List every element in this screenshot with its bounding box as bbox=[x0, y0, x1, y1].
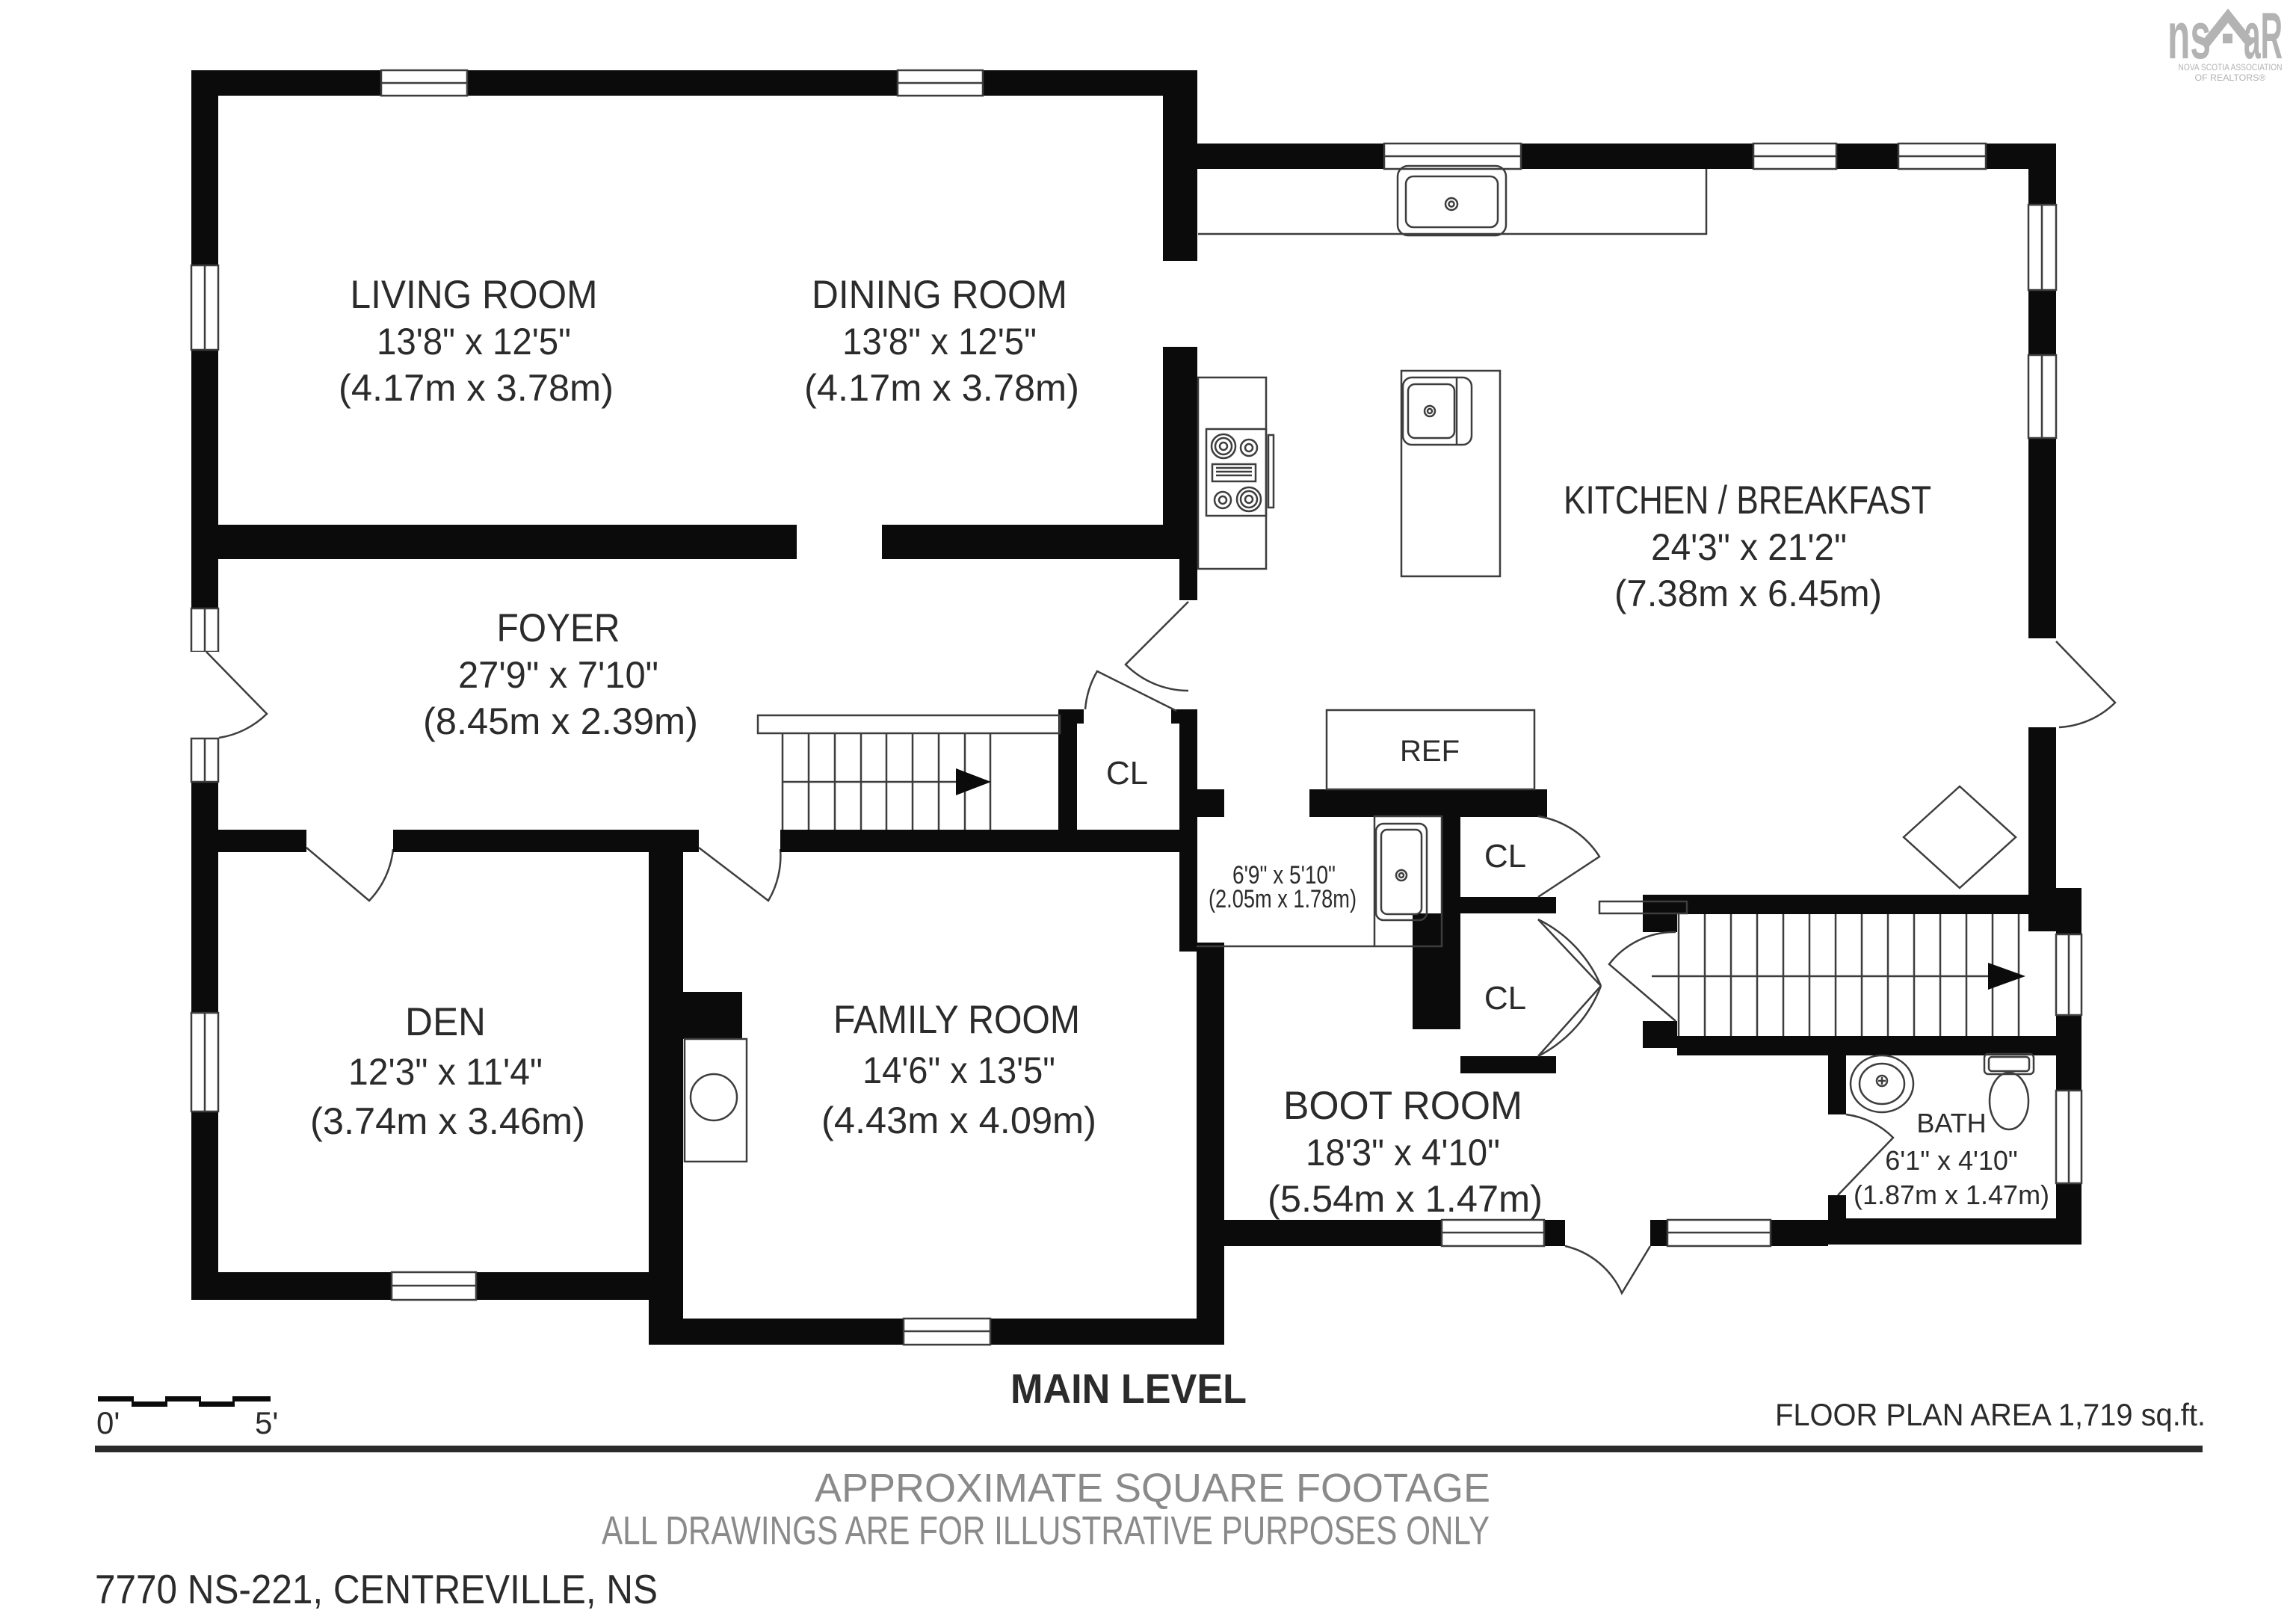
svg-text:(8.45m x 2.39m): (8.45m x 2.39m) bbox=[423, 700, 698, 742]
svg-text:REF: REF bbox=[1400, 735, 1460, 768]
svg-text:NOVA SCOTIA ASSOCIATION: NOVA SCOTIA ASSOCIATION bbox=[2179, 62, 2283, 73]
svg-text:(3.74m x 3.46m): (3.74m x 3.46m) bbox=[310, 1100, 585, 1142]
svg-text:OF REALTORS®: OF REALTORS® bbox=[2195, 73, 2266, 83]
svg-text:FOYER: FOYER bbox=[497, 606, 620, 650]
svg-text:KITCHEN / BREAKFAST: KITCHEN / BREAKFAST bbox=[1564, 478, 1931, 522]
svg-text:(4.43m x 4.09m): (4.43m x 4.09m) bbox=[821, 1100, 1096, 1141]
svg-text:DEN: DEN bbox=[405, 1000, 486, 1044]
svg-text:13'8" x 12'5": 13'8" x 12'5" bbox=[842, 321, 1037, 363]
svg-text:BOOT ROOM: BOOT ROOM bbox=[1283, 1084, 1522, 1128]
svg-text:CL: CL bbox=[1484, 980, 1526, 1017]
svg-text:27'9" x 7'10": 27'9" x 7'10" bbox=[458, 654, 658, 696]
svg-text:CL: CL bbox=[1106, 755, 1148, 792]
svg-text:CL: CL bbox=[1484, 838, 1526, 875]
svg-text:(2.05m x 1.78m): (2.05m x 1.78m) bbox=[1209, 885, 1357, 913]
svg-text:FAMILY ROOM: FAMILY ROOM bbox=[833, 998, 1080, 1042]
svg-text:18'3" x 4'10": 18'3" x 4'10" bbox=[1306, 1132, 1500, 1174]
svg-text:14'6" x 13'5": 14'6" x 13'5" bbox=[862, 1049, 1055, 1091]
svg-text:(4.17m x 3.78m): (4.17m x 3.78m) bbox=[804, 367, 1079, 409]
svg-text:LIVING ROOM: LIVING ROOM bbox=[351, 273, 598, 317]
svg-text:12'3" x 11'4": 12'3" x 11'4" bbox=[348, 1051, 543, 1093]
svg-text:APPROXIMATE SQUARE FOOTAGE: APPROXIMATE SQUARE FOOTAGE bbox=[815, 1466, 1490, 1511]
svg-text:5': 5' bbox=[255, 1405, 278, 1440]
svg-text:BATH: BATH bbox=[1916, 1108, 1986, 1138]
svg-text:7770 NS-221, CENTREVILLE, NS: 7770 NS-221, CENTREVILLE, NS bbox=[95, 1566, 658, 1612]
svg-text:FLOOR PLAN AREA 1,719 sq.ft.: FLOOR PLAN AREA 1,719 sq.ft. bbox=[1775, 1397, 2206, 1432]
svg-text:(1.87m x 1.47m): (1.87m x 1.47m) bbox=[1854, 1180, 2049, 1210]
svg-text:DINING ROOM: DINING ROOM bbox=[812, 273, 1067, 317]
svg-text:0': 0' bbox=[96, 1405, 120, 1440]
svg-text:(4.17m x 3.78m): (4.17m x 3.78m) bbox=[339, 367, 614, 409]
svg-text:(7.38m x 6.45m): (7.38m x 6.45m) bbox=[1614, 573, 1882, 614]
svg-text:6'1" x 4'10": 6'1" x 4'10" bbox=[1885, 1145, 2017, 1176]
svg-text:24'3" x 21'2": 24'3" x 21'2" bbox=[1651, 526, 1847, 568]
svg-text:(5.54m x 1.47m): (5.54m x 1.47m) bbox=[1268, 1178, 1543, 1220]
svg-text:13'8" x 12'5": 13'8" x 12'5" bbox=[377, 321, 571, 363]
svg-text:ALL DRAWINGS ARE FOR ILLUSTRAT: ALL DRAWINGS ARE FOR ILLUSTRATIVE PURPOS… bbox=[602, 1508, 1490, 1553]
svg-text:MAIN LEVEL: MAIN LEVEL bbox=[1010, 1365, 1247, 1412]
